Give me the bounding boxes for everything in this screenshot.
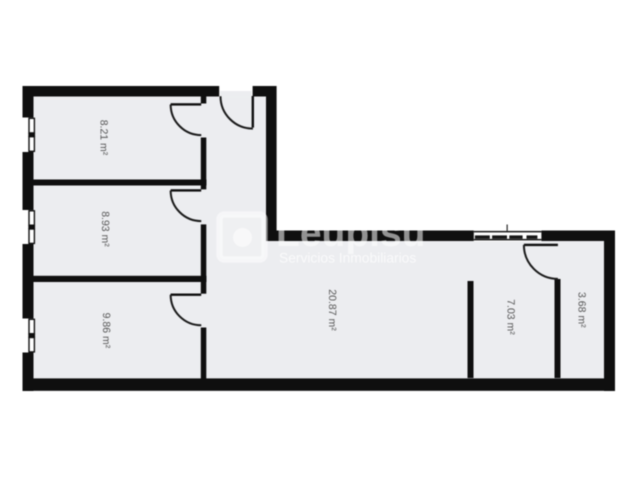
svg-text:Servicios Inmobiliarios: Servicios Inmobiliarios bbox=[279, 251, 416, 266]
svg-text:9.86 m²: 9.86 m² bbox=[100, 313, 112, 349]
svg-text:7.03 m²: 7.03 m² bbox=[505, 299, 517, 335]
svg-text:Leupisu: Leupisu bbox=[276, 212, 426, 255]
svg-text:8.93 m²: 8.93 m² bbox=[99, 211, 111, 247]
svg-text:8.21 m²: 8.21 m² bbox=[98, 120, 110, 156]
svg-text:20.87 m²: 20.87 m² bbox=[326, 289, 338, 331]
svg-text:3.68 m²: 3.68 m² bbox=[576, 292, 588, 328]
